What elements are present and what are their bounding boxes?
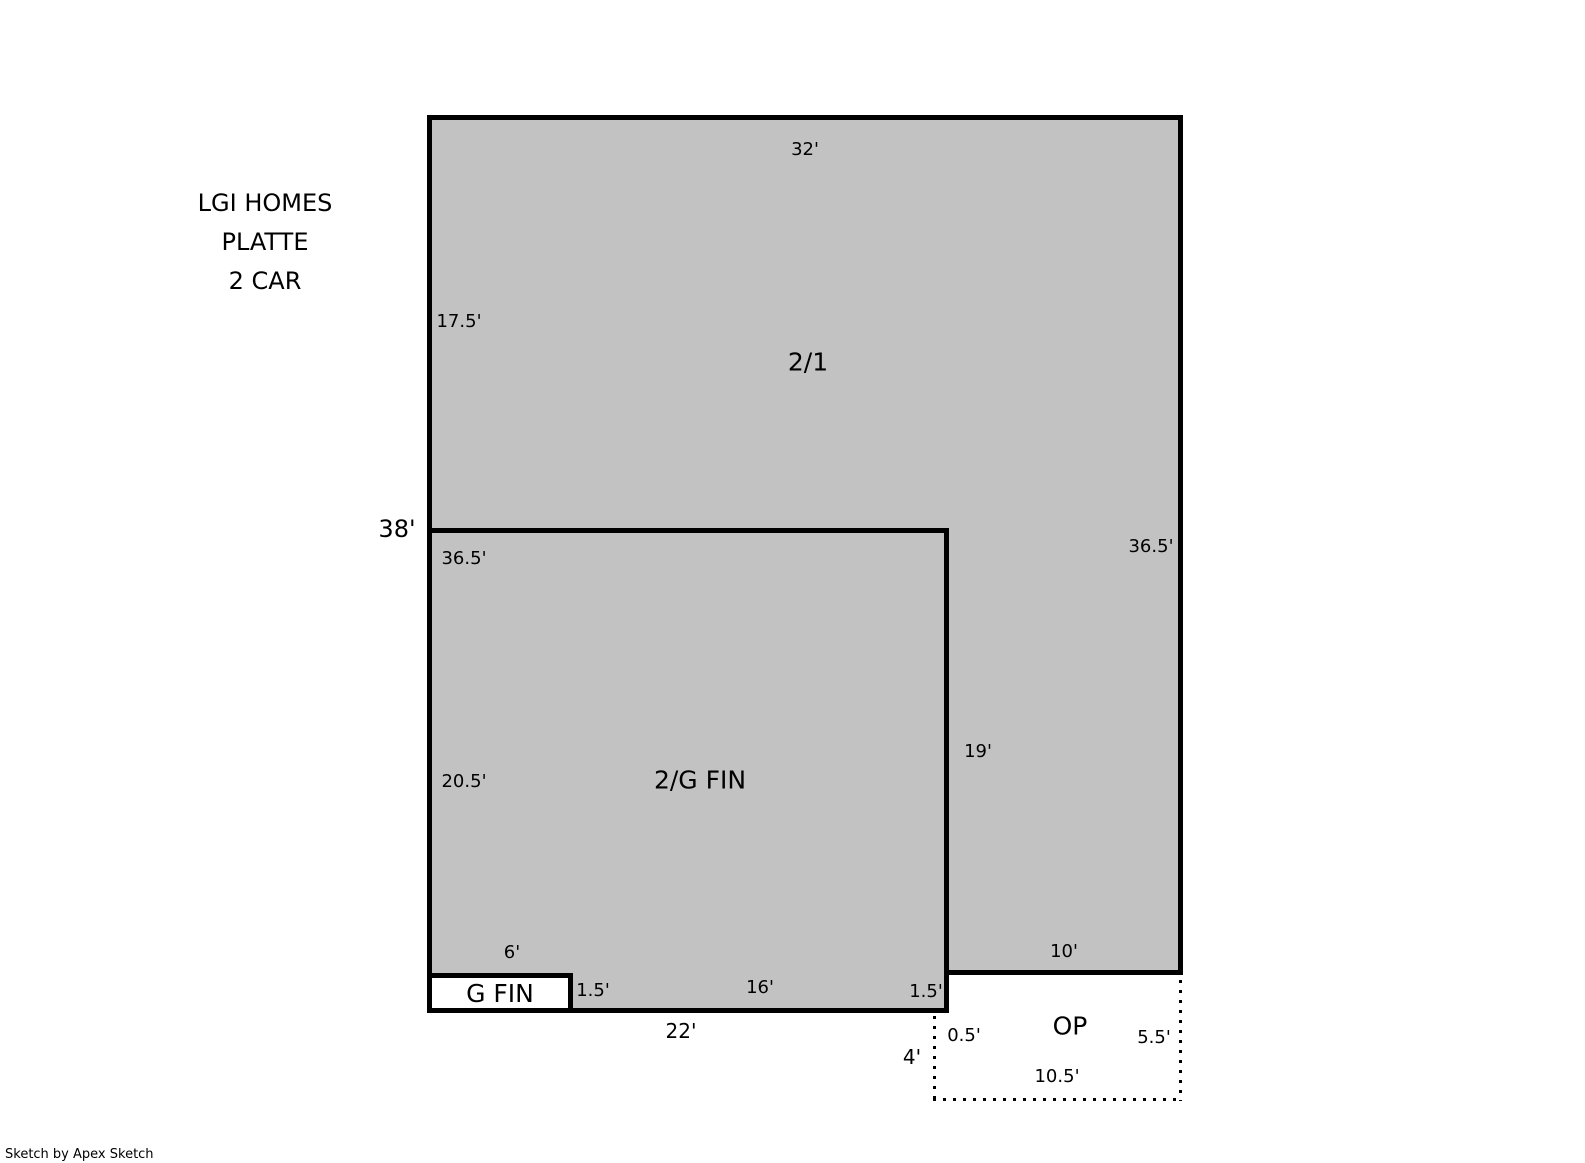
dim-main-inner-left: 36.5' xyxy=(441,550,486,568)
area-label-lower: 2/G FIN xyxy=(654,768,746,793)
title-line-1: LGI HOMES xyxy=(198,184,333,223)
dim-lower-bottom-step: 1.5' xyxy=(909,983,943,1001)
porch-dotted-bottom-edge xyxy=(933,1098,1183,1101)
garage-strip-label: G FIN xyxy=(466,981,534,1006)
dim-lower-bottom-total: 22' xyxy=(666,1021,697,1041)
dim-garage-depth: 1.5' xyxy=(576,982,610,1000)
dim-porch-top: 10' xyxy=(1050,943,1078,961)
porch-dotted-right-edge xyxy=(1179,980,1182,1101)
dim-overall-left: 38' xyxy=(378,517,415,541)
dim-lower-left: 20.5' xyxy=(441,773,486,791)
area-label-open-porch: OP xyxy=(1053,1014,1088,1039)
porch-dotted-left-edge xyxy=(933,1016,936,1100)
area-label-main: 2/1 xyxy=(788,350,828,375)
title-line-3: 2 CAR xyxy=(198,262,333,301)
dim-step-right: 19' xyxy=(964,743,992,761)
dim-lower-bottom-mid: 16' xyxy=(746,979,774,997)
dim-porch-right: 5.5' xyxy=(1137,1029,1171,1047)
dim-porch-inset: 0.5' xyxy=(947,1027,981,1045)
floorplan-sketch: G FIN LGI HOMES PLATTE 2 CAR 2/1 2/G FIN… xyxy=(0,0,1585,1163)
dim-main-top: 32' xyxy=(791,141,819,159)
dim-garage-width: 6' xyxy=(504,944,520,962)
sketch-credit: Sketch by Apex Sketch xyxy=(5,1148,154,1161)
dim-main-left-upper: 17.5' xyxy=(436,313,481,331)
dim-porch-bottom: 10.5' xyxy=(1034,1068,1079,1086)
title-block: LGI HOMES PLATTE 2 CAR xyxy=(198,184,333,301)
dim-porch-left: 4' xyxy=(903,1047,921,1067)
garage-strip-box: G FIN xyxy=(427,973,573,1013)
dim-main-right: 36.5' xyxy=(1128,538,1173,556)
title-line-2: PLATTE xyxy=(198,223,333,262)
